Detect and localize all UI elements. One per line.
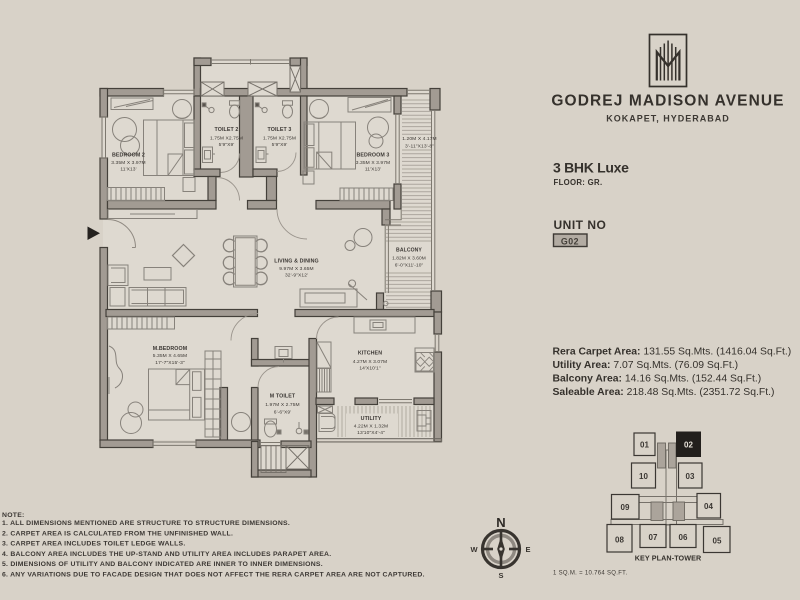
- svg-text:W: W: [470, 545, 478, 554]
- svg-text:32'-9"X12': 32'-9"X12': [285, 273, 308, 279]
- svg-text:2. CARPET AREA IS CALCULATED F: 2. CARPET AREA IS CALCULATED FROM THE UN…: [2, 530, 233, 537]
- svg-text:5.35M X 4.65M: 5.35M X 4.65M: [153, 353, 187, 359]
- svg-text:4.27M X 3.07M: 4.27M X 3.07M: [353, 359, 387, 365]
- svg-text:BALCONY: BALCONY: [396, 248, 422, 254]
- svg-text:10: 10: [639, 472, 648, 481]
- svg-text:BEDROOM 2: BEDROOM 2: [112, 153, 145, 159]
- svg-text:6'-6"X9': 6'-6"X9': [274, 410, 291, 416]
- svg-text:3 BHK Luxe: 3 BHK Luxe: [553, 160, 629, 176]
- svg-text:06: 06: [679, 533, 688, 542]
- svg-text:4. BALCONY AREA INCLUDES THE U: 4. BALCONY AREA INCLUDES THE UP-STAND AN…: [2, 551, 331, 558]
- svg-text:17'-7"X15'-3": 17'-7"X15'-3": [155, 360, 185, 366]
- svg-text:3. CARPET AREA INCLUDES TOILET: 3. CARPET AREA INCLUDES TOILET LEDGE WAL…: [2, 541, 186, 548]
- svg-text:02: 02: [684, 441, 693, 450]
- svg-text:N: N: [496, 515, 505, 530]
- svg-text:1.75M X2.75M: 1.75M X2.75M: [263, 136, 296, 142]
- svg-text:UTILITY: UTILITY: [361, 416, 382, 422]
- svg-text:UNIT NO: UNIT NO: [554, 218, 607, 232]
- svg-text:1 SQ.M. = 10.764 SQ.FT.: 1 SQ.M. = 10.764 SQ.FT.: [553, 571, 627, 577]
- svg-text:KOKAPET, HYDERABAD: KOKAPET, HYDERABAD: [606, 114, 730, 124]
- svg-text:E: E: [525, 545, 530, 554]
- svg-text:1.75M X2.75M: 1.75M X2.75M: [210, 136, 243, 142]
- svg-text:5. DIMENSIONS OF UTILITY AND B: 5. DIMENSIONS OF UTILITY AND BALCONY IND…: [2, 561, 323, 568]
- svg-text:01: 01: [640, 441, 649, 450]
- svg-text:3.35M X 3.97M: 3.35M X 3.97M: [356, 160, 390, 166]
- svg-text:5'9"X9': 5'9"X9': [219, 142, 235, 148]
- svg-text:9.97M X 3.65M: 9.97M X 3.65M: [279, 266, 313, 272]
- svg-text:6. ANY VARIATIONS DUE TO FACAD: 6. ANY VARIATIONS DUE TO FACADE DESIGN T…: [2, 572, 425, 579]
- svg-text:13'10"X4'-4": 13'10"X4'-4": [357, 430, 385, 436]
- svg-text:05: 05: [713, 537, 722, 546]
- svg-text:NOTE:: NOTE:: [2, 512, 25, 519]
- svg-text:Utility Area: 7.07 Sq.Mts. (76: Utility Area: 7.07 Sq.Mts. (76.09 Sq.Ft.…: [553, 360, 739, 371]
- svg-text:KITCHEN: KITCHEN: [358, 351, 382, 357]
- svg-text:11'X13': 11'X13': [120, 166, 136, 172]
- svg-text:6'-0"X11'-10": 6'-0"X11'-10": [395, 263, 424, 269]
- svg-text:08: 08: [615, 536, 624, 545]
- svg-text:03: 03: [686, 472, 695, 481]
- svg-text:BEDROOM 3: BEDROOM 3: [357, 153, 390, 159]
- svg-text:1.82M X 3.60M: 1.82M X 3.60M: [392, 256, 426, 262]
- svg-text:1. ALL DIMENSIONS MENTIONED AR: 1. ALL DIMENSIONS MENTIONED ARE STRUCTUR…: [2, 520, 290, 527]
- svg-text:GODREJ MADISON AVENUE: GODREJ MADISON AVENUE: [551, 93, 784, 110]
- svg-text:Rera Carpet Area: 131.55 Sq.Mt: Rera Carpet Area: 131.55 Sq.Mts. (1416.0…: [553, 347, 792, 358]
- svg-text:Saleable Area: 218.48 Sq.Mts.: Saleable Area: 218.48 Sq.Mts. (2351.72 S…: [553, 387, 775, 398]
- svg-text:S: S: [498, 571, 503, 580]
- svg-text:TOILET 2: TOILET 2: [215, 127, 239, 133]
- svg-text:5'9"X9': 5'9"X9': [272, 142, 288, 148]
- svg-text:1.97M X 2.75M: 1.97M X 2.75M: [265, 402, 299, 408]
- svg-text:G02: G02: [561, 236, 579, 246]
- svg-text:TOILET 3: TOILET 3: [268, 127, 292, 133]
- svg-text:M TOILET: M TOILET: [270, 394, 296, 400]
- svg-text:Balcony Area: 14.16 Sq.Mts. (1: Balcony Area: 14.16 Sq.Mts. (152.44 Sq.F…: [553, 374, 762, 385]
- svg-text:11'X13': 11'X13': [365, 166, 381, 172]
- svg-text:14'X10'1": 14'X10'1": [359, 366, 381, 372]
- svg-text:09: 09: [621, 503, 630, 512]
- svg-text:3.35M X 3.97M: 3.35M X 3.97M: [111, 160, 145, 166]
- svg-text:04: 04: [704, 502, 713, 511]
- svg-text:M.BEDROOM: M.BEDROOM: [153, 346, 188, 352]
- svg-text:KEY PLAN-TOWER: KEY PLAN-TOWER: [635, 554, 702, 563]
- svg-text:1.20M X 4.17M: 1.20M X 4.17M: [402, 136, 436, 142]
- svg-text:4.22M X 1.32M: 4.22M X 1.32M: [354, 424, 388, 430]
- svg-text:FLOOR: GR.: FLOOR: GR.: [554, 178, 603, 187]
- svg-text:LIVING & DINING: LIVING & DINING: [274, 259, 318, 265]
- svg-text:3'-11"X13'-8": 3'-11"X13'-8": [405, 144, 434, 150]
- svg-text:07: 07: [649, 533, 658, 542]
